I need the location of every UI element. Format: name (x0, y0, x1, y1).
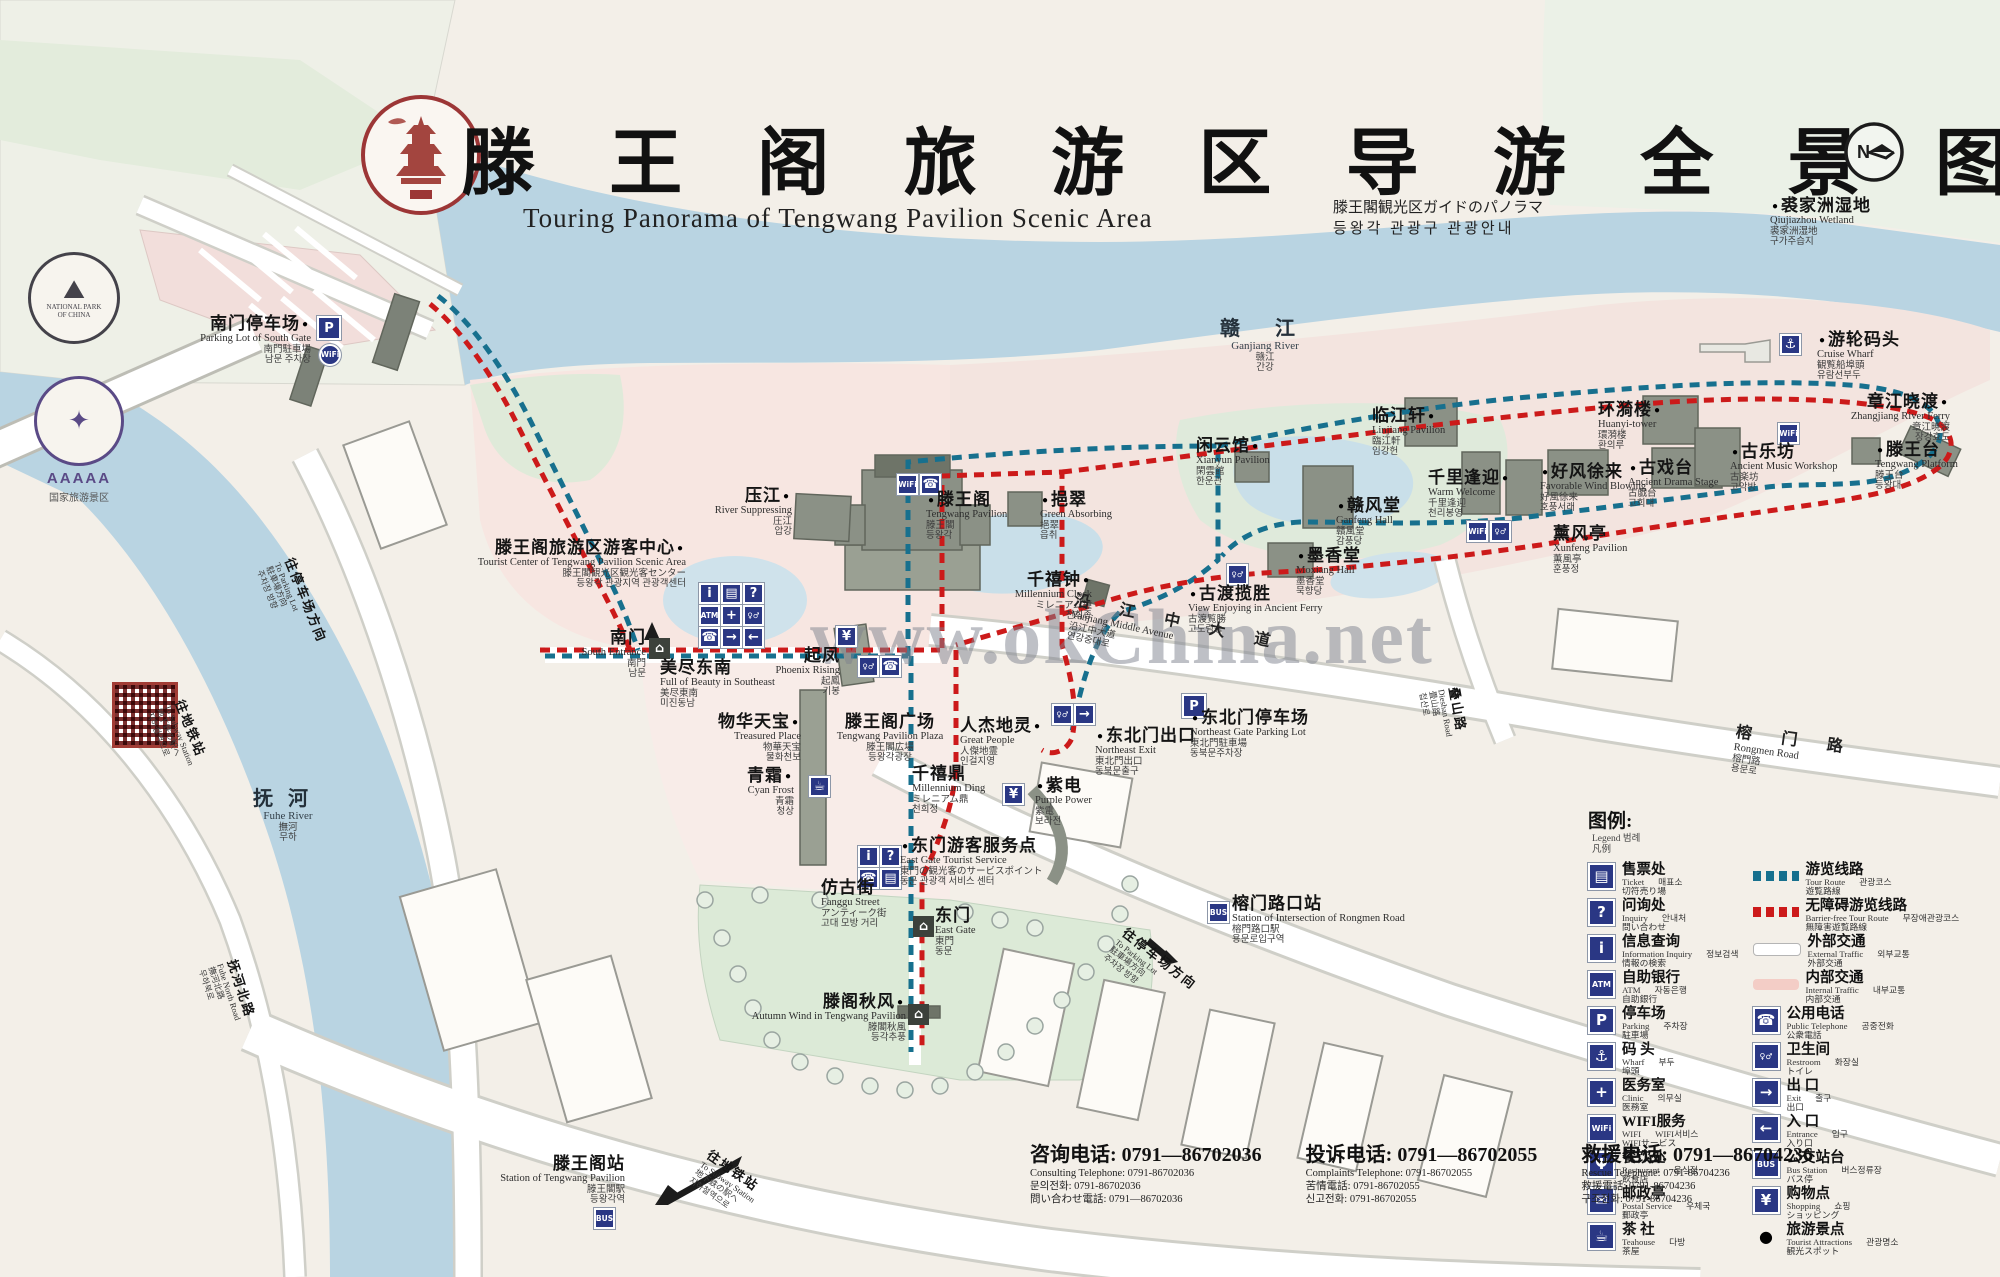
pavilion-marker-icon: ⌂ (908, 1004, 929, 1025)
legend-item: 内部交通Internal Traffic내부교통内部交通 (1753, 971, 1960, 1000)
label-ko: 동문 (935, 947, 976, 958)
shopping-icon: ¥ (1003, 784, 1024, 805)
label-ko: 등왕각 (926, 531, 1007, 542)
label-en: Ganfeng Hall (1336, 515, 1401, 527)
label-ja: 環漪楼 (1598, 431, 1663, 442)
label-ko: 고대 모방 거리 (821, 919, 887, 930)
contact-line: 苦情電話: 0791-86702055 (1306, 1180, 1538, 1193)
label-ko: 남문 (582, 669, 646, 680)
poi-dot: ● (790, 717, 801, 728)
label-ja: 滕王閣広場 (837, 743, 944, 754)
inquiry-icon: ? (880, 846, 901, 867)
legend-zh: 问询处 (1622, 899, 1686, 914)
legend-ja: 内部交通 (1806, 995, 1906, 1004)
legend-item: P停车场Parking주차장駐車場 (1588, 1007, 1739, 1036)
legend-item: +医务室Clinic의무실医務室 (1588, 1079, 1739, 1108)
contact-line: Complaints Telephone: 0791-86702055 (1306, 1167, 1538, 1180)
badge-text: NATIONAL PARK (47, 303, 102, 311)
legend-item: ☎公用电话Public Telephone공중전화公衆電話 (1753, 1007, 1960, 1036)
label-zh: ●滕王台 (1875, 440, 1958, 459)
map-label-visitor-center: 滕王阁旅游区游客中心●Tourist Center of Tengwang Pa… (478, 538, 686, 590)
legend-item-text: 旅游景点Tourist Attractions관광명소観光スポット (1787, 1223, 1899, 1257)
wharf-icon: ⚓ (1780, 334, 1801, 355)
label-ja: 千里逢迎 (1428, 499, 1511, 510)
label-en: Favorable Wind Blowing (1540, 481, 1646, 493)
restroom-icon: ♀♂ (1753, 1043, 1780, 1070)
map-label-fanggu-street: 仿古街Fanggu Streetアンティーク街고대 모방 거리 (821, 878, 887, 930)
label-ko: 남문 주차장 (200, 355, 311, 366)
legend-title-sub: Legend 범례 凡例 (1592, 834, 1992, 857)
poi-dot: ● (1652, 405, 1663, 416)
label-ja: 東北門出口 (1095, 757, 1196, 768)
bus-stop-icon: BUS (1208, 902, 1229, 923)
label-zh: 滕王阁旅游区游客中心● (478, 538, 686, 557)
compass-icon: N (1842, 120, 1906, 184)
legend-zh: 卫生间 (1787, 1043, 1860, 1058)
legend-ja: 埠頭 (1622, 1067, 1675, 1076)
label-en: Station of Tengwang Pavilion (500, 1173, 625, 1185)
label-ja: 赣江 (1220, 353, 1310, 364)
label-ja: 東門 (935, 937, 976, 948)
label-en: Cruise Wharf (1817, 349, 1900, 361)
legend-zh: 自助银行 (1622, 971, 1687, 986)
legend-zh: 无障碍游览线路 (1806, 899, 1960, 914)
map-label-phoenix-rising: 起凤Phoenix Rising起鳳기봉 (776, 646, 840, 698)
label-zh: 临江轩● (1372, 406, 1445, 425)
parking-icon: P (1588, 1007, 1615, 1034)
label-zh: ●东北门停车场 (1190, 708, 1309, 727)
legend-ja: 公衆電話 (1787, 1031, 1894, 1040)
label-ko: 물화천보 (718, 753, 801, 764)
wifi-icon: WiFi (1778, 423, 1799, 444)
label-ko: 무하 (253, 833, 323, 844)
legend-item-text: 信息查询Information Inquiry정보검색情報の検索 (1622, 935, 1739, 969)
label-zh: 薰风亭 (1553, 524, 1627, 543)
legend-zh: 停车场 (1622, 1007, 1688, 1022)
phone-icon: ☎ (699, 627, 720, 648)
map-label-linjiang-pavilion: 临江轩●Linjiang Pavilion臨江軒임강헌 (1372, 406, 1445, 458)
badge-text: OF CHINA (58, 311, 91, 319)
legend-item-text: 无障碍游览线路Barrier-free Tour Route무장애관광코스無障害… (1806, 899, 1960, 933)
legend-item-text: 出 口Exit출구出口 (1787, 1079, 1832, 1113)
label-ja: 人傑地霊 (960, 747, 1043, 758)
label-zh: 抚河 (253, 788, 323, 810)
legend-title-ja: 凡例 (1592, 845, 1611, 855)
label-ja: 榕門路口駅 (1232, 925, 1405, 936)
label-ko: 등각추풍 (752, 1033, 906, 1044)
label-zh: ●赣风堂 (1336, 496, 1401, 515)
label-zh: 闲云馆● (1196, 436, 1270, 455)
poi-dot: ● (1426, 411, 1437, 422)
legend-title-ko: 범례 (1623, 834, 1640, 844)
poi-dot: ● (1190, 713, 1201, 724)
east-gate-icon: ⌂ (913, 916, 934, 937)
page-title: 滕 王 阁 旅 游 区 导 游 全 景 图 (462, 104, 2000, 210)
label-ko: 인걸지영 (960, 757, 1043, 768)
label-ko: 고악방 (1730, 483, 1837, 494)
tengwang-map-poster: 滕 王 阁 旅 游 区 导 游 全 景 图 Touring Panorama o… (0, 0, 2000, 1277)
label-ko: 동북문출구 (1095, 767, 1196, 778)
restroom-icon: ♀♂ (743, 605, 764, 626)
contact-zh: 救援电话: 0791—86704236 (1581, 1138, 1813, 1167)
label-ko: 용문로입구역 (1232, 935, 1405, 946)
sw-white-swatch (1753, 943, 1801, 956)
exit-icon: → (1074, 704, 1095, 725)
atm-icon: ATM (1588, 971, 1615, 998)
label-zh: 青霜● (747, 766, 794, 785)
label-zh: 南门 (582, 628, 646, 647)
legend-ja: 茶屋 (1622, 1247, 1685, 1256)
label-ko: 등왕각역 (500, 1195, 625, 1206)
label-ja: 章江暁渡 (1851, 423, 1950, 434)
label-zh: ●紫电 (1035, 776, 1092, 795)
legend-zh: 信息查询 (1622, 935, 1739, 950)
legend-item: ?问询处Inquiry안내처問い合わせ (1588, 899, 1739, 928)
teahouse-icon: ☕ (1588, 1223, 1615, 1250)
label-zh: 人杰地灵● (960, 716, 1043, 735)
label-ja: 東北門駐車場 (1190, 739, 1309, 750)
map-label-huanyi-tower: 环漪楼●Huanyi-tower環漪楼환의루 (1598, 400, 1663, 452)
legend-zh: WIFI服务 (1622, 1115, 1698, 1130)
poi-dot: ● (1188, 589, 1199, 600)
legend-item: ATM自助银行ATM자동은행自助銀行 (1588, 971, 1739, 1000)
poi-dot: ● (1032, 721, 1043, 732)
label-en: Green Absorbing (1040, 509, 1112, 521)
map-label-millennium-ding: 千禧鼎Millennium Dingミレニアム鼎천희정 (912, 764, 985, 816)
consulting-telephone: 咨询电话: 0791—86702036Consulting Telephone:… (1030, 1138, 1262, 1206)
map-label-tengwang-pavilion: ●滕王阁Tengwang Pavilion滕王閣등왕각 (926, 490, 1007, 542)
label-zh: ●好风徐来 (1540, 462, 1646, 481)
national-park-badge: ⛰ NATIONAL PARK OF CHINA (28, 252, 120, 344)
label-ko: 천희정 (912, 805, 985, 816)
legend-ja: 出口 (1787, 1103, 1832, 1112)
label-ja: 古楽坊 (1730, 473, 1837, 484)
legend-zh: 内部交通 (1806, 971, 1906, 986)
map-label-south-gate-parking: 南门停车场●Parking Lot of South Gate南門駐車場남문 주… (200, 314, 311, 366)
exit-icon: → (1753, 1079, 1780, 1106)
label-ja: 紫電 (1035, 807, 1092, 818)
contact-zh: 咨询电话: 0791—86702036 (1030, 1138, 1262, 1167)
pavilion-emblem-icon: ⛰ (63, 277, 85, 303)
label-ko: 보라전 (1035, 817, 1092, 828)
map-label-fuhe-river: 抚河Fuhe River撫河무하 (253, 788, 323, 844)
poi-dot: ● (1336, 501, 1347, 512)
label-ko: 임강헌 (1372, 447, 1445, 458)
label-ja: 撫河 (253, 823, 323, 834)
map-label-tengwang-pavilion-station: 滕王阁站Station of Tengwang Pavilion滕王閣駅등왕각역 (500, 1154, 625, 1206)
restroom-icon: ♀♂ (1227, 564, 1248, 585)
label-ja: ミレニアム鼎 (912, 795, 985, 806)
contact-line: 구조전화: 0791-86704236 (1581, 1193, 1813, 1206)
label-ko: 환의루 (1598, 441, 1663, 452)
map-label-purple-power: ●紫电Purple Power紫電보라전 (1035, 776, 1092, 828)
aaaaa-scenic-badge: ✦ (34, 376, 124, 466)
contact-phones: 咨询电话: 0791—86702036Consulting Telephone:… (1030, 1138, 1813, 1206)
map-label-green-absorbing: ●挹翠Green Absorbing挹翠읍취 (1040, 490, 1112, 542)
poi-dot: ● (1817, 335, 1828, 346)
legend-zh: 茶 社 (1622, 1223, 1685, 1238)
label-zh: ●东北门出口 (1095, 726, 1196, 745)
label-en: Phoenix Rising (776, 665, 840, 677)
legend-zh: 外部交通 (1808, 935, 1910, 950)
legend-ja: 遊覧路線 (1806, 887, 1892, 896)
label-zh: ●墨香堂 (1296, 546, 1361, 565)
map-label-east-gate: 东门East Gate東門동문 (935, 906, 976, 958)
legend-item: 无障碍游览线路Barrier-free Tour Route무장애관광코스無障害… (1753, 899, 1960, 928)
wifi-icon: WiFi (319, 344, 341, 366)
legend-title: 图例: (1588, 806, 1992, 833)
clinic-icon: + (721, 605, 742, 626)
contact-zh: 投诉电话: 0791—86702055 (1306, 1138, 1538, 1167)
label-en: South Entrance (582, 647, 646, 659)
label-ja: 滕王閣駅 (500, 1185, 625, 1196)
label-en: Ancient Music Workshop (1730, 461, 1837, 473)
map-label-ganjiang-river: 赣 江Ganjiang River赣江간강 (1220, 318, 1310, 374)
label-zh: 赣 江 (1220, 318, 1310, 340)
label-ja: 薫風亭 (1553, 555, 1627, 566)
wharf-icon: ⚓ (1588, 1043, 1615, 1070)
label-en: Fuhe River (253, 810, 323, 822)
label-zh: 压江● (715, 486, 792, 505)
label-en: Tengwang Platform (1875, 459, 1958, 471)
label-ko: 훈풍정 (1553, 565, 1627, 576)
map-label-xunfeng-pavilion: 薰风亭Xunfeng Pavilion薫風亭훈풍정 (1553, 524, 1627, 576)
label-en: Xianyun Pavilion (1196, 455, 1270, 467)
poi-dot: ● (1040, 495, 1051, 506)
rescue-telephone: 救援电话: 0791—86704236Rescue Telephone: 079… (1581, 1138, 1813, 1206)
map-label-tengwang-platform: ●滕王台Tengwang Platform滕王台등왕대 (1875, 440, 1958, 492)
map-label-ganfeng-hall: ●赣风堂Ganfeng Hall贛風堂감풍당 (1336, 496, 1401, 548)
information-icon: i (1588, 935, 1615, 962)
bird-emblem-icon: ✦ (68, 408, 90, 434)
label-en: Cyan Frost (747, 785, 794, 797)
legend-item-text: 停车场Parking주차장駐車場 (1622, 1007, 1688, 1041)
legend-ja: ショッピング (1787, 1211, 1851, 1220)
legend-item: 游览线路Tour Route관광코스遊覧路線 (1753, 863, 1960, 892)
inquiry-icon: ? (743, 583, 764, 604)
map-label-river-suppressing: 压江●River Suppressing圧江압강 (715, 486, 792, 538)
poi-dot: ● (1875, 445, 1886, 456)
label-ja: 美尽東南 (660, 689, 775, 700)
poi-dot: ● (1035, 781, 1046, 792)
label-en: East Gate (935, 925, 976, 937)
label-ja: 滕王台 (1875, 471, 1958, 482)
label-ja: 圧江 (715, 517, 792, 528)
map-label-qiujiazhou-wetland: ●裘家洲湿地Qiujiazhou Wetland裘家洲湿地구가주습지 (1770, 196, 1871, 248)
label-zh: 千里逢迎● (1428, 468, 1511, 487)
label-ko: 기봉 (776, 687, 840, 698)
map-label-great-people: 人杰地灵●Great People人傑地霊인걸지영 (960, 716, 1043, 768)
legend-item: ⚓码 头Wharf부두埠頭 (1588, 1043, 1739, 1072)
label-en: Northeast Exit (1095, 745, 1196, 757)
legend-zh: 旅游景点 (1787, 1223, 1899, 1238)
poi-dot: ● (895, 997, 906, 1008)
label-en: Qiujiazhou Wetland (1770, 215, 1871, 227)
page-subtitle-en: Touring Panorama of Tengwang Pavilion Sc… (523, 203, 1153, 234)
page-subtitle-ko: 등왕각 관광구 관광안내 (1333, 217, 1515, 238)
teahouse-icon: ☕ (809, 776, 830, 797)
poi-dot: ● (1730, 447, 1741, 458)
label-en: East Gate Tourist Service (900, 855, 1043, 867)
legend-item-text: 码 头Wharf부두埠頭 (1622, 1043, 1675, 1077)
attraction-dot-icon: ● (1753, 1223, 1780, 1250)
label-zh: 物华天宝● (718, 712, 801, 731)
legend-ja: 無障害遊覧路線 (1806, 923, 1960, 932)
poi-dot: ● (675, 543, 686, 554)
legend-ja: トイレ (1787, 1067, 1860, 1076)
south-gate-icon: ⌂ (649, 638, 670, 659)
info-icon: i (858, 846, 879, 867)
poi-dot: ● (781, 491, 792, 502)
label-ja: 滕王閣 (926, 521, 1007, 532)
label-en: Tourist Center of Tengwang Pavilion Scen… (478, 557, 686, 569)
legend-ja: 駐車場 (1622, 1031, 1688, 1040)
label-ja: アンティーク街 (821, 909, 887, 920)
label-zh: 东门 (935, 906, 976, 925)
label-ko: 간강 (1220, 363, 1310, 374)
label-ja: 好風徐来 (1540, 493, 1646, 504)
label-en: River Suppressing (715, 505, 792, 517)
label-zh: ●挹翠 (1040, 490, 1112, 509)
label-en: Great People (960, 735, 1043, 747)
map-label-zhangjiang-river-ferry: 章江晓渡●Zhangjiang River Ferry章江暁渡장강효도 (1851, 392, 1950, 444)
label-zh: ●东门游客服务点 (900, 836, 1043, 855)
wifi-icon: WiFi (1467, 521, 1488, 542)
label-en: Millennium Ding (912, 783, 985, 795)
legend-item: ☕茶 社Teahouse다방茶屋 (1588, 1223, 1739, 1252)
map-label-ancient-music-workshop: ●古乐坊Ancient Music Workshop古楽坊고악방 (1730, 442, 1837, 494)
poi-dot: ● (1081, 575, 1092, 586)
legend-item-text: 问询处Inquiry안내처問い合わせ (1622, 899, 1686, 933)
aaaaa-sublabel: 国家旅游景区 (22, 489, 136, 504)
label-ja: 挹翠 (1040, 521, 1112, 532)
map-label-dieshan-road: 叠山路Dieshan Road畳山路첩산로 (1418, 686, 1469, 741)
legend-zh: 售票处 (1622, 863, 1682, 878)
label-en: Treasured Place (718, 731, 801, 743)
inquiry-icon: ? (1588, 899, 1615, 926)
poi-dot: ● (1296, 551, 1307, 562)
label-zh: 美尽东南 (660, 658, 775, 677)
map-label-autumn-wind: 滕阁秋风●Autumn Wind in Tengwang Pavilion滕閣秋… (752, 992, 906, 1044)
page-subtitle-ja: 滕王閣観光区ガイドのパノラマ (1333, 196, 1543, 217)
legend-zh: 入 口 (1787, 1115, 1848, 1130)
legend-item-text: 内部交通Internal Traffic내부교통内部交通 (1806, 971, 1906, 1005)
contact-line: 問い合わせ電話: 0791—86702036 (1030, 1193, 1262, 1206)
label-ja: 起鳳 (776, 677, 840, 688)
poi-dot: ● (1250, 441, 1261, 452)
label-ja: 物華天宝 (718, 743, 801, 754)
map-label-northeast-gate-parking: ●东北门停车场Northeast Gate Parking Lot東北門駐車場동… (1190, 708, 1309, 760)
label-en: Zhangjiang River Ferry (1851, 411, 1950, 423)
restroom-icon: ♀♂ (858, 656, 879, 677)
label-zh: 起凤 (776, 646, 840, 665)
legend-ja: 観光スポット (1787, 1247, 1899, 1256)
label-en: Ganjiang River (1220, 340, 1310, 352)
legend-item-text: 游览线路Tour Route관광코스遊覧路線 (1806, 863, 1892, 897)
label-en: Linjiang Pavilion (1372, 425, 1445, 437)
contact-line: 신고전화: 0791-86702055 (1306, 1193, 1538, 1206)
entrance-icon: ← (743, 627, 764, 648)
poi-dot: ● (783, 771, 794, 782)
complaints-telephone: 投诉电话: 0791—86702055Complaints Telephone:… (1306, 1138, 1538, 1206)
map-label-xianyun-pavilion: 闲云馆●Xianyun Pavilion閑雲館한운관 (1196, 436, 1270, 488)
label-ja: 滕王閣観光区観光客センター (478, 569, 686, 580)
poi-dot: ● (1095, 731, 1106, 742)
legend-item: i信息查询Information Inquiry정보검색情報の検索 (1588, 935, 1739, 964)
poi-dot: ● (1500, 473, 1511, 484)
label-zh: 环漪楼● (1598, 400, 1663, 419)
poi-dot: ● (1770, 201, 1781, 212)
legend-item: ♀♂卫生间Restroom화장실トイレ (1753, 1043, 1960, 1072)
legend-item: →出 口Exit출구出口 (1753, 1079, 1960, 1108)
label-ja: 贛風堂 (1336, 527, 1401, 538)
legend-item-text: 茶 社Teahouse다방茶屋 (1622, 1223, 1685, 1257)
label-ko: 유람선부두 (1817, 371, 1900, 382)
sw-blue-swatch (1753, 871, 1799, 881)
legend-item-text: 售票处Ticket매표소切符売り場 (1622, 863, 1682, 897)
sw-red-swatch (1753, 907, 1799, 917)
map-label-northeast-exit: ●东北门出口Northeast Exit東北門出口동북문출구 (1095, 726, 1196, 778)
label-ja: 南門駐車場 (200, 345, 311, 356)
legend-item-text: 公用电话Public Telephone공중전화公衆電話 (1787, 1007, 1894, 1041)
label-ko: 동문 관광객 서비스 센터 (900, 877, 1043, 888)
label-ko: 한운관 (1196, 477, 1270, 488)
clinic-icon: + (1588, 1079, 1615, 1106)
label-en: Purple Power (1035, 795, 1092, 807)
map-label-favorable-wind-blowing: ●好风徐来Favorable Wind Blowing好風徐来호풍서래 (1540, 462, 1646, 514)
label-en: Northeast Gate Parking Lot (1190, 727, 1309, 739)
label-ja: 青霜 (747, 797, 794, 808)
atm-icon: ATM (699, 605, 720, 626)
legend-zh: 医务室 (1622, 1079, 1682, 1094)
legend-zh: 游览线路 (1806, 863, 1892, 878)
contact-line: Consulting Telephone: 0791-86702036 (1030, 1167, 1262, 1180)
label-zh: 滕王阁广场 (837, 712, 944, 731)
label-ko: 호풍서래 (1540, 503, 1646, 514)
label-ja: 臨江軒 (1372, 437, 1445, 448)
map-label-treasured-place: 物华天宝●Treasured Place物華天宝물화천보 (718, 712, 801, 764)
parking-icon: P (317, 316, 341, 340)
label-zh: ●古乐坊 (1730, 442, 1837, 461)
label-zh: 南门停车场● (200, 314, 311, 333)
label-en: Parking Lot of South Gate (200, 333, 311, 345)
ticket-icon: ▤ (1588, 863, 1615, 890)
label-ja: 滕閣秋風 (752, 1023, 906, 1034)
label-zh: 章江晓渡● (1851, 392, 1950, 411)
map-label-cruise-wharf: ●游轮码头Cruise Wharf観覧船埠頭유람선부두 (1817, 330, 1900, 382)
label-en: Moxiang Hall (1296, 565, 1361, 577)
label-zh: ●滕王阁 (926, 490, 1007, 509)
label-zh: 滕王阁站 (500, 1154, 625, 1173)
map-label-warm-welcome: 千里逢迎●Warm Welcome千里逢迎천리봉영 (1428, 468, 1511, 520)
map-label-tengwang-pavilion-plaza: 滕王阁广场Tengwang Pavilion Plaza滕王閣広場등왕각광장 (837, 712, 944, 764)
poi-dot: ● (1540, 467, 1551, 478)
label-en: Tengwang Pavilion (926, 509, 1007, 521)
map-label-south-entrance: 南门South Entrance南門남문 (582, 628, 646, 680)
label-zh: ●古渡揽胜 (1188, 584, 1323, 603)
label-zh: ●游轮码头 (1817, 330, 1900, 349)
legend-zh: 出 口 (1787, 1079, 1832, 1094)
legend-item: ●旅游景点Tourist Attractions관광명소観光スポット (1753, 1223, 1960, 1252)
poi-dot: ● (300, 319, 311, 330)
legend-item: 外部交通External Traffic외부교통外部交通 (1753, 935, 1960, 964)
poi-dot: ● (1939, 397, 1950, 408)
label-ko: 압강 (715, 527, 792, 538)
label-en: Xunfeng Pavilion (1553, 543, 1627, 555)
label-ko: 구가주습지 (1770, 237, 1871, 248)
poi-dot: ● (900, 841, 911, 852)
shopping-icon: ¥ (836, 626, 857, 647)
